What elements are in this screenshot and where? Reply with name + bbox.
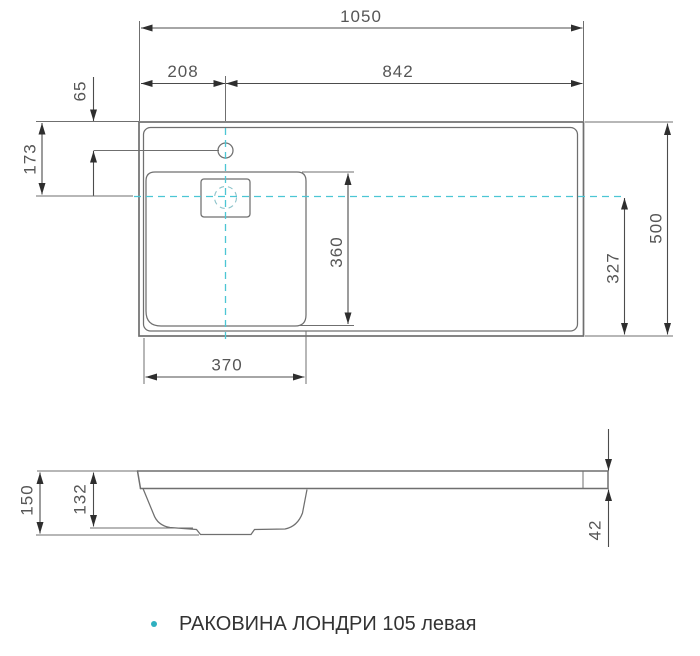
dimension-value: 65 (71, 81, 90, 102)
side-view (37, 471, 608, 535)
deck-left-edge (138, 471, 141, 489)
technical-drawing: 1050 208 842 65 173 500 (0, 0, 700, 656)
dimension-value: 500 (647, 212, 666, 243)
dim-faucet-to-right-842: 842 (226, 62, 583, 84)
dimension-value: 370 (211, 356, 242, 375)
dim-overall-width-1050: 1050 (140, 7, 584, 121)
caption: РАКОВИНА ЛОНДРИ 105 левая (151, 613, 476, 635)
caption-text: РАКОВИНА ЛОНДРИ 105 левая (179, 613, 476, 635)
dim-basin-center-to-bottom-327: 327 (604, 198, 625, 335)
sink-outer-edge (139, 122, 584, 336)
dimension-value: 173 (21, 143, 40, 174)
dim-basin-center-from-top-173: 173 (21, 122, 140, 197)
dimension-value: 132 (71, 483, 90, 514)
dim-faucet-from-left-208: 208 (141, 62, 226, 121)
dim-overall-height-150: 150 (18, 473, 200, 536)
dim-overall-depth-500: 500 (585, 122, 673, 336)
dim-bowl-depth-132: 132 (71, 473, 194, 529)
dimension-value: 208 (167, 62, 198, 81)
dimension-value: 360 (327, 236, 346, 267)
dimension-value: 327 (604, 252, 623, 283)
top-view-dimensions: 1050 208 842 65 173 500 (21, 7, 674, 384)
dimension-value: 150 (18, 484, 37, 515)
sink-deck-edge (144, 128, 578, 332)
dim-basin-length-360: 360 (300, 172, 354, 326)
dimension-value: 1050 (340, 7, 382, 26)
dim-faucet-from-top-65: 65 (71, 77, 220, 196)
drawing-sheet: 1050 208 842 65 173 500 (0, 0, 700, 656)
dimension-value: 842 (382, 62, 413, 81)
drain-square (201, 179, 250, 217)
top-view (134, 122, 624, 344)
dimension-value: 42 (586, 520, 605, 541)
bullet-icon (151, 621, 157, 627)
